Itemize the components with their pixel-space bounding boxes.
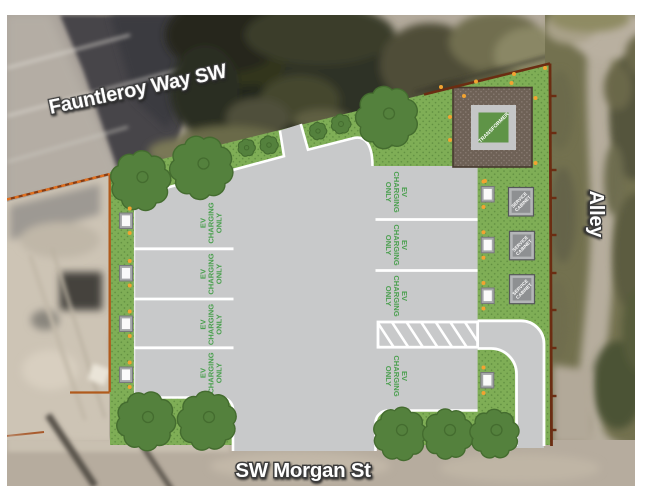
svg-text:ONLY: ONLY: [214, 213, 223, 233]
svg-text:ONLY: ONLY: [384, 366, 393, 386]
svg-text:Alley: Alley: [585, 191, 607, 239]
svg-text:ONLY: ONLY: [214, 264, 223, 284]
svg-text:ONLY: ONLY: [214, 363, 223, 383]
svg-text:ONLY: ONLY: [384, 286, 393, 306]
svg-text:ONLY: ONLY: [214, 314, 223, 334]
svg-text:SW Morgan St: SW Morgan St: [235, 459, 371, 482]
svg-text:ONLY: ONLY: [384, 235, 393, 255]
svg-text:ONLY: ONLY: [384, 182, 393, 202]
